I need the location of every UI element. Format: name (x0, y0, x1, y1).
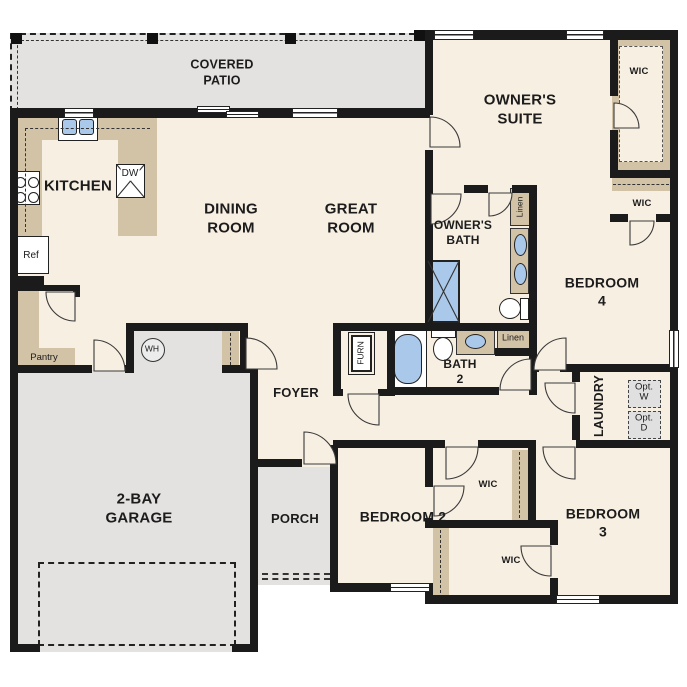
label-linen-hall: Linen (502, 332, 524, 343)
vanity-sink (514, 234, 527, 256)
wall (572, 415, 580, 440)
label-wic-bedroom4: WIC (632, 198, 651, 210)
window (64, 108, 94, 118)
wall (425, 185, 432, 193)
label-wic-bedroom3: WIC (501, 555, 520, 567)
wall (10, 644, 40, 652)
dashed-line (25, 128, 26, 232)
window (556, 595, 600, 604)
label-dishwasher: DW (121, 168, 140, 181)
dashed-line (613, 184, 669, 185)
wall (378, 389, 387, 396)
wall (425, 440, 433, 487)
toilet (499, 298, 521, 319)
label-water-heater: WH (145, 344, 159, 355)
window (434, 30, 474, 40)
label-pantry: Pantry (30, 352, 57, 364)
dashed-line (25, 128, 150, 129)
label-optional-washer: Opt. W (635, 383, 653, 404)
wall (572, 372, 580, 382)
label-bedroom-2: BEDROOM 2 (360, 508, 447, 526)
label-bedroom-3: BEDROOM 3 (561, 506, 645, 541)
label-kitchen: KITCHEN (44, 178, 112, 197)
wall (610, 170, 670, 178)
wall (670, 30, 678, 602)
patio-post (11, 33, 22, 44)
wall (250, 370, 258, 644)
wall (528, 440, 536, 528)
label-dining-room: DINING ROOM (204, 200, 258, 238)
dashed-line (17, 40, 18, 110)
patio-post (147, 33, 158, 44)
wall (387, 387, 499, 395)
wall (495, 348, 531, 356)
bathtub (394, 334, 422, 384)
wall (330, 445, 338, 592)
label-laundry: LAUNDRY (592, 375, 608, 437)
wall (425, 150, 433, 331)
dashed-line (519, 452, 520, 518)
floor-plan: COVERED PATIO KITCHEN DINING ROOM GREAT … (0, 0, 687, 687)
label-porch: PORCH (271, 511, 319, 527)
patio-post (285, 33, 296, 44)
wall (656, 214, 670, 222)
garage-door (38, 562, 236, 646)
abs (258, 585, 333, 602)
wall (232, 644, 258, 652)
wall (610, 35, 618, 96)
wall (10, 108, 18, 652)
window (566, 30, 604, 40)
dashed-line (16, 40, 422, 41)
label-foyer: FOYER (273, 385, 319, 401)
wall (560, 364, 670, 372)
owners-wic-floor (619, 46, 663, 162)
window (292, 108, 338, 118)
wall (425, 30, 433, 115)
wall (333, 323, 341, 396)
bath2-sink (465, 334, 486, 349)
wall (464, 185, 488, 193)
wic-bedroom3-shelf (433, 528, 449, 595)
sink-basin (79, 119, 94, 135)
label-bath-2: BATH 2 (443, 357, 476, 387)
stove-burner (28, 177, 39, 188)
wall (73, 285, 80, 297)
label-linen-owners: Linen (515, 197, 526, 218)
dashed-line (262, 573, 330, 575)
wall (10, 365, 92, 373)
wall (333, 389, 343, 396)
dashed-line (262, 578, 330, 580)
wall (550, 528, 558, 545)
label-great-room: GREAT ROOM (325, 200, 377, 238)
label-optional-dryer: Opt. D (635, 414, 653, 435)
label-furnace: FURN (356, 341, 367, 365)
window (669, 330, 679, 368)
label-wic-bedroom2: WIC (478, 479, 497, 491)
wall (529, 364, 539, 372)
toilet (520, 298, 529, 320)
dashed-line (440, 530, 441, 593)
stove-burner (28, 192, 39, 203)
wic-bedroom2-shelf (512, 450, 528, 520)
wall (240, 323, 248, 373)
wall (610, 214, 628, 222)
sliding-door-panel (226, 111, 259, 118)
wall (126, 323, 248, 331)
wall (258, 459, 302, 467)
dashed-line (230, 333, 231, 365)
wall (10, 285, 80, 291)
label-garage: 2-BAY GARAGE (105, 490, 172, 528)
label-owners-bath: OWNER'S BATH (434, 218, 492, 248)
abs (330, 592, 425, 602)
wall (576, 440, 672, 448)
label-bedroom-4: BEDROOM 4 (560, 275, 645, 310)
label-owners-suite: OWNER'S SUITE (484, 91, 556, 129)
window (390, 583, 430, 592)
patio-post (414, 30, 425, 41)
label-wic-owners: WIC (629, 66, 648, 78)
wall (126, 323, 134, 373)
label-covered-patio: COVERED PATIO (190, 57, 253, 88)
wall (333, 323, 537, 331)
label-refrigerator: Ref (23, 250, 39, 263)
vanity-sink (514, 263, 527, 285)
sink-basin (62, 119, 77, 135)
